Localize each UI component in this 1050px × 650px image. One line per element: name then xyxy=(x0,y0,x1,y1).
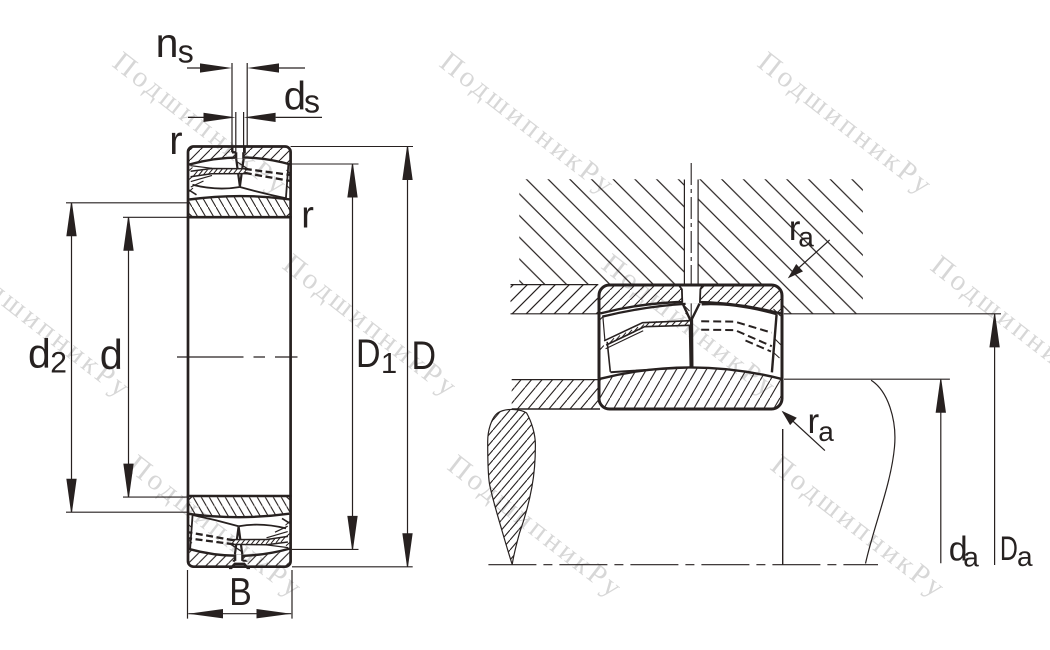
svg-text:ПодшипникРу: ПодшипникРу xyxy=(0,249,138,406)
svg-text:r: r xyxy=(301,195,314,237)
svg-text:D: D xyxy=(1000,530,1018,568)
svg-text:a: a xyxy=(1017,541,1033,572)
svg-text:ПодшипникРу: ПодшипникРу xyxy=(765,449,953,606)
svg-text:ПодшипникРу: ПодшипникРу xyxy=(277,248,465,405)
svg-text:r: r xyxy=(169,119,182,163)
svg-text:d: d xyxy=(284,74,306,118)
svg-text:B: B xyxy=(229,571,252,614)
svg-text:s: s xyxy=(178,34,194,70)
svg-text:ПодшипникРу: ПодшипникРу xyxy=(925,249,1050,406)
svg-text:2: 2 xyxy=(50,347,67,380)
svg-text:ПодшипникРу: ПодшипникРу xyxy=(752,46,940,203)
svg-text:a: a xyxy=(798,222,814,253)
svg-text:a: a xyxy=(963,541,979,572)
svg-text:n: n xyxy=(156,20,179,66)
svg-text:d: d xyxy=(28,331,51,377)
svg-text:D: D xyxy=(356,332,381,376)
svg-text:1: 1 xyxy=(381,348,397,380)
svg-text:s: s xyxy=(304,83,320,119)
svg-text:d: d xyxy=(100,331,123,378)
svg-text:ПодшипникРу: ПодшипникРу xyxy=(434,46,622,203)
svg-text:a: a xyxy=(818,416,834,447)
svg-text:ПодшипникРу: ПодшипникРу xyxy=(442,449,630,606)
svg-text:D: D xyxy=(412,334,437,378)
